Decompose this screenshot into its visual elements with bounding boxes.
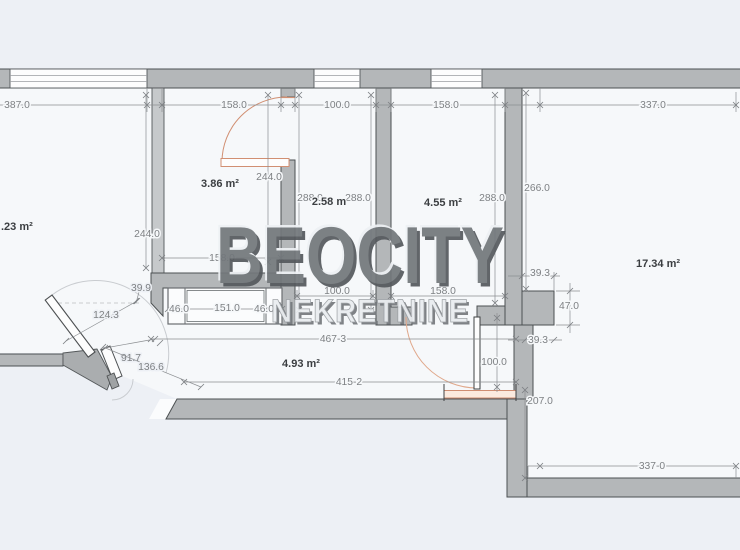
svg-text:337.0: 337.0 xyxy=(640,100,666,111)
svg-text:288.0: 288.0 xyxy=(479,193,505,204)
svg-text:158.0: 158.0 xyxy=(221,100,247,111)
svg-text:387.0: 387.0 xyxy=(4,100,30,111)
svg-text:288.0: 288.0 xyxy=(345,193,371,204)
svg-text:207.0: 207.0 xyxy=(527,396,553,407)
svg-text:3.86 m²: 3.86 m² xyxy=(201,178,239,190)
svg-text:BEOCITY: BEOCITY xyxy=(216,210,504,300)
svg-text:46.0: 46.0 xyxy=(169,304,189,315)
svg-text:39.3: 39.3 xyxy=(530,268,550,279)
svg-text:124.3: 124.3 xyxy=(93,310,119,321)
svg-text:467-3: 467-3 xyxy=(320,334,347,345)
svg-text:4.93 m²: 4.93 m² xyxy=(282,358,320,370)
svg-text:39.3: 39.3 xyxy=(528,335,548,346)
svg-text:415-2: 415-2 xyxy=(336,377,363,388)
svg-text:244.0: 244.0 xyxy=(134,229,160,240)
svg-text:151.0: 151.0 xyxy=(214,303,240,314)
svg-text:4.55 m²: 4.55 m² xyxy=(424,197,462,209)
svg-text:.23 m²: .23 m² xyxy=(1,221,33,233)
svg-text:100.0: 100.0 xyxy=(324,100,350,111)
svg-text:47.0: 47.0 xyxy=(559,301,579,312)
svg-text:136.6: 136.6 xyxy=(138,362,164,373)
svg-text:39.9: 39.9 xyxy=(131,283,151,294)
svg-text:337-0: 337-0 xyxy=(639,461,666,472)
svg-text:158.0: 158.0 xyxy=(433,100,459,111)
svg-text:266.0: 266.0 xyxy=(524,183,550,194)
svg-text:NEKRETNINE: NEKRETNINE xyxy=(271,292,469,329)
svg-text:100.0: 100.0 xyxy=(481,357,507,368)
svg-text:2.58 m: 2.58 m xyxy=(312,196,346,208)
svg-text:244.0: 244.0 xyxy=(256,172,282,183)
svg-text:17.34 m²: 17.34 m² xyxy=(636,258,680,270)
